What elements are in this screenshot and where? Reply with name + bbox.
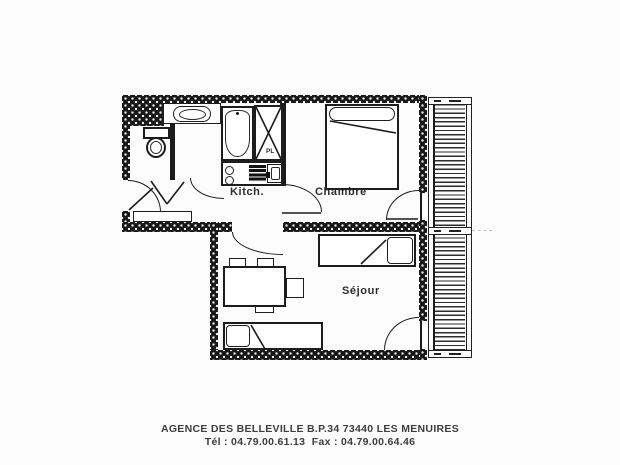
kitchen-sink-inner	[271, 167, 280, 180]
wall-right-mid	[419, 220, 427, 321]
balcony-cap-bottom-mark	[434, 353, 441, 355]
wall-right-upper	[419, 95, 427, 193]
floor-plan-page: Kitch. Chambre Séjour PL AGENCE DES BELL…	[0, 0, 620, 465]
footer-agency-line: AGENCE DES BELLEVILLE B.P.34 73440 LES M…	[0, 423, 620, 435]
fixture-lines	[0, 0, 620, 465]
toilet-bowl-inner	[150, 141, 162, 154]
bedroom-balcony-door-arc	[386, 190, 419, 220]
bathtub-inner	[225, 110, 250, 157]
balcony-extension-dash	[472, 230, 492, 231]
bedroom-label: Chambre	[315, 186, 367, 198]
washbasin-inner	[179, 109, 206, 120]
entry-door-arc	[128, 180, 161, 212]
wall-living-bottom	[210, 350, 427, 360]
wall-step-vertical	[210, 222, 218, 360]
living-balcony-door-arc	[384, 317, 419, 350]
dining-table	[223, 266, 286, 307]
bathroom-door-arc	[190, 178, 224, 199]
wall-left-upper	[122, 95, 130, 180]
stove-icon	[249, 165, 266, 182]
chair-right	[286, 278, 304, 298]
balcony-cap-top-mark2	[449, 100, 461, 102]
wall-right-lower	[419, 349, 427, 360]
balcony-cap-bottom-mark2	[449, 353, 461, 355]
balcony-divider-mark2	[449, 230, 461, 232]
kitchen-tap	[266, 172, 270, 178]
double-bed-pillow	[329, 107, 395, 121]
hall-radiator	[133, 211, 192, 222]
balcony-divider-mark	[434, 230, 441, 232]
kitchen-label: Kitch.	[230, 186, 264, 198]
wall-top	[122, 95, 427, 103]
single-bed-top-pillow	[387, 237, 413, 264]
footer-phone-line: Tél : 04.79.00.61.13 Fax : 04.79.00.64.4…	[0, 436, 620, 448]
bath-door-leaf	[167, 182, 184, 204]
burner-icon-2	[225, 176, 234, 185]
closet-label: PL	[266, 148, 274, 155]
burner-icon-1	[225, 166, 234, 175]
threshold-bedroom-balcony	[420, 193, 422, 220]
living-door-arc	[232, 232, 283, 255]
wall-mid-horizontal	[283, 222, 427, 232]
living-room-label: Séjour	[342, 285, 380, 297]
threshold-living-balcony	[420, 321, 422, 349]
bathtub-drain	[236, 112, 239, 115]
wall-wc-partition	[170, 123, 175, 180]
single-bed-bottom-pillow	[226, 325, 250, 347]
balcony-cap-top-mark	[434, 100, 441, 102]
